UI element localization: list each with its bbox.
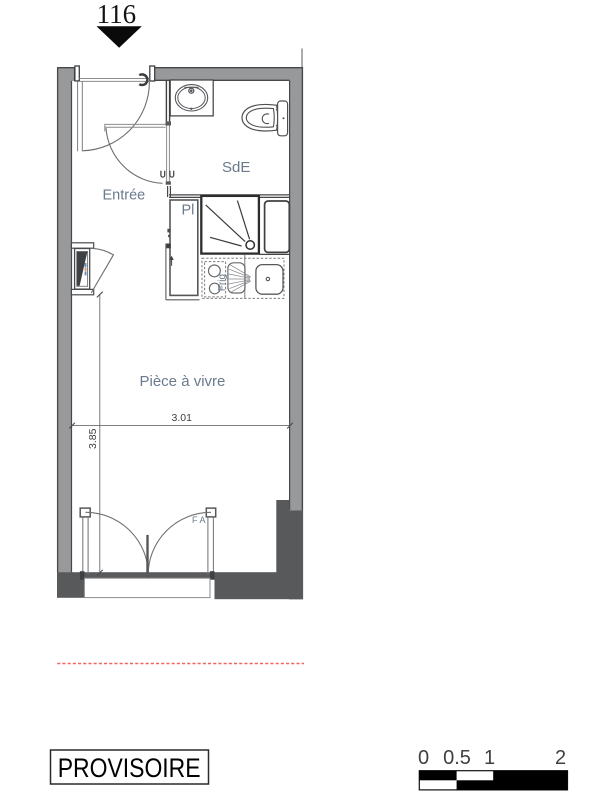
svg-text:0: 0 [418, 747, 429, 769]
svg-text:Pl: Pl [182, 203, 195, 219]
svg-text:3.85: 3.85 [87, 428, 99, 449]
svg-text:2: 2 [555, 747, 566, 769]
svg-text:1: 1 [484, 747, 495, 769]
svg-text:Frig: Frig [217, 274, 228, 291]
svg-text:SdE: SdE [222, 159, 250, 176]
svg-text:116: 116 [97, 0, 137, 29]
svg-text:0.5: 0.5 [443, 747, 471, 769]
svg-text:3.01: 3.01 [172, 412, 193, 424]
svg-text:F A: F A [192, 515, 206, 525]
svg-text:Pièce à vivre: Pièce à vivre [140, 373, 226, 390]
svg-text:Entrée: Entrée [103, 188, 146, 204]
svg-text:PROVISOIRE: PROVISOIRE [58, 753, 201, 783]
